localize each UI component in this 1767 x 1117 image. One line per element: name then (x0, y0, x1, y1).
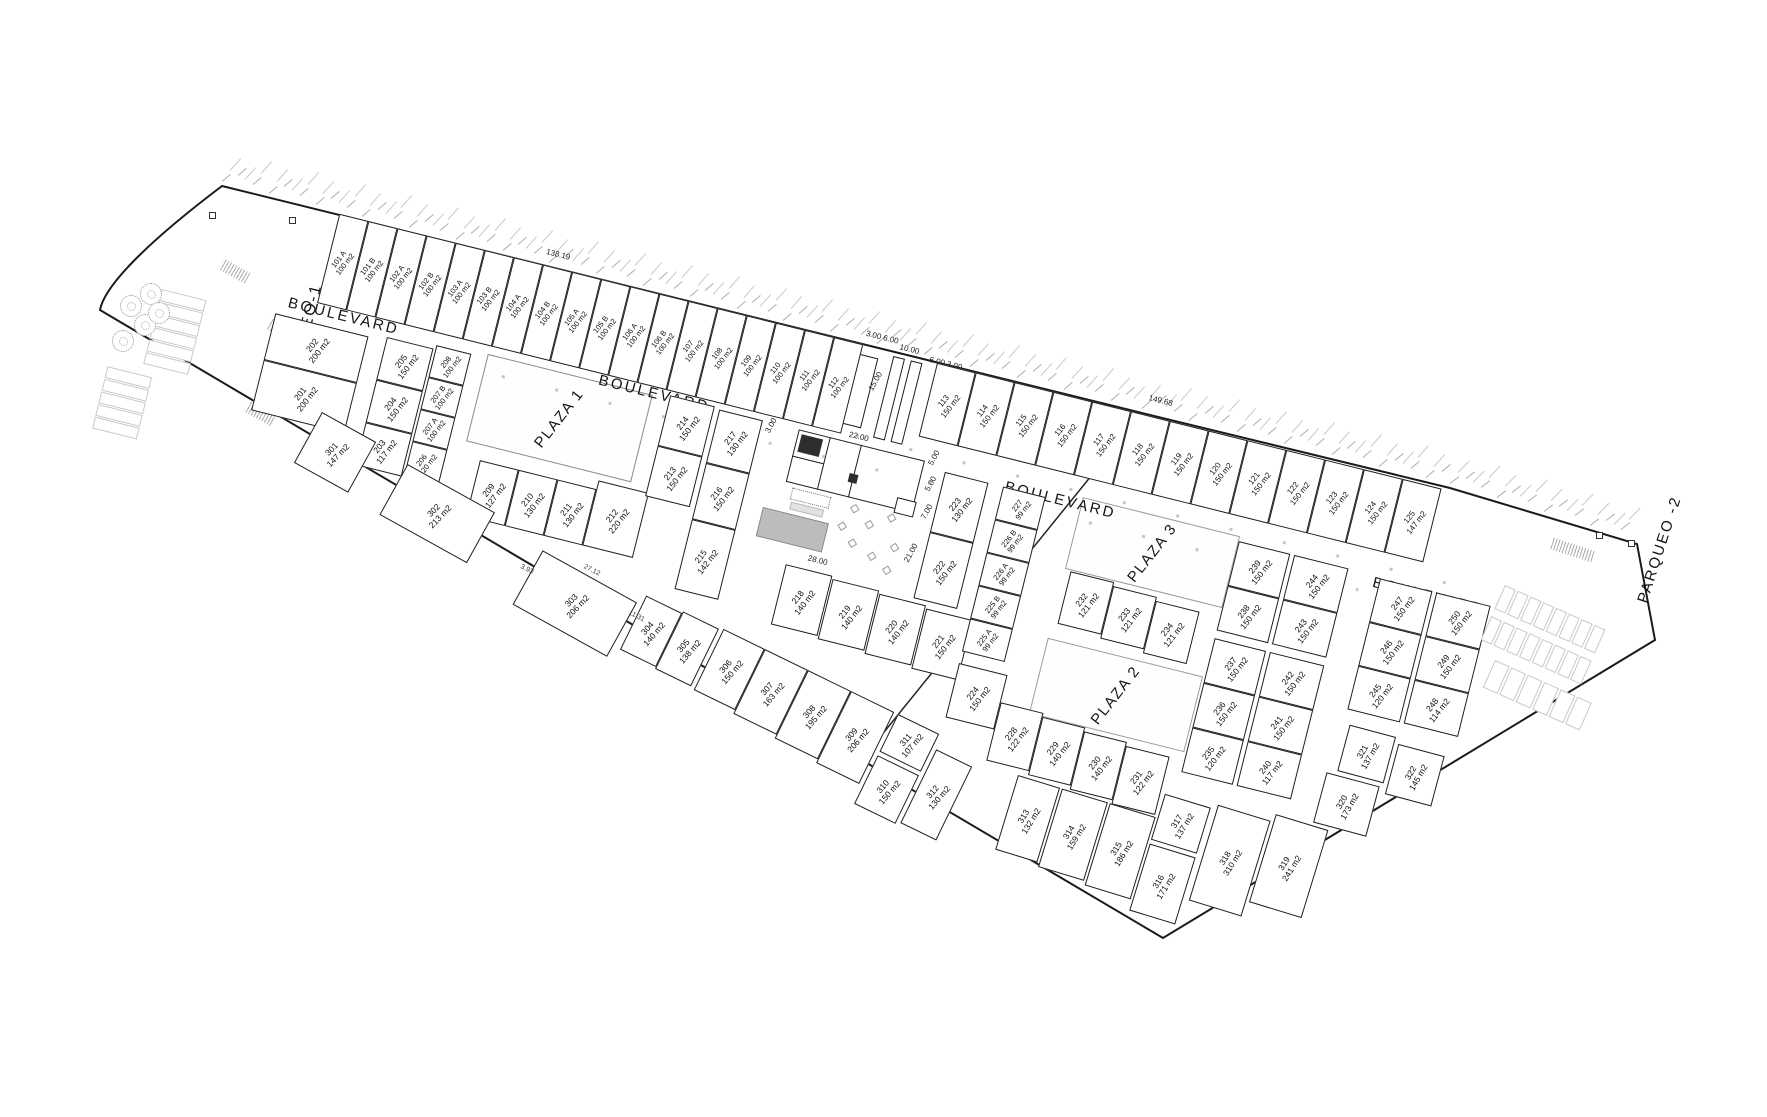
lot-320: 320173 m2 (1313, 772, 1380, 836)
plaza-1-label: PLAZA 1 (531, 385, 587, 450)
plaza-2-label: PLAZA 2 (1088, 662, 1144, 727)
tree-icon (148, 302, 170, 324)
lot-223: 223130 m2 (930, 472, 989, 543)
plaza-3-label: PLAZA 3 (1124, 520, 1180, 585)
boundary-marker (1596, 532, 1603, 539)
lot-222: 222150 m2 (913, 532, 973, 609)
tree-icon (112, 330, 134, 352)
lot-213: 213150 m2 (645, 446, 702, 508)
dimension-label: 5.00 (923, 475, 938, 493)
lot-215: 215142 m2 (675, 519, 736, 600)
dimension-label: 21.00 (902, 542, 920, 564)
site-plan-canvas: PARQUEO-1 PLAZA 1 PLAZA 3 PLAZA 2 BOULEV… (0, 0, 1767, 1117)
lot-322: 322145 m2 (1385, 744, 1445, 807)
dimension-label: 28.00 (807, 554, 829, 568)
dimension-label: 5.00 (926, 449, 941, 467)
boundary-marker (1628, 540, 1635, 547)
clubhouse-annex (893, 497, 916, 517)
dimension-label: 3.00 (763, 416, 778, 434)
dimension-label: 22.00 (848, 430, 870, 444)
dimension-label: 7.00 (919, 503, 934, 521)
boundary-marker (289, 217, 296, 224)
lot-216: 216150 m2 (692, 463, 750, 530)
tree-icon (120, 295, 142, 317)
boundary-marker (209, 212, 216, 219)
